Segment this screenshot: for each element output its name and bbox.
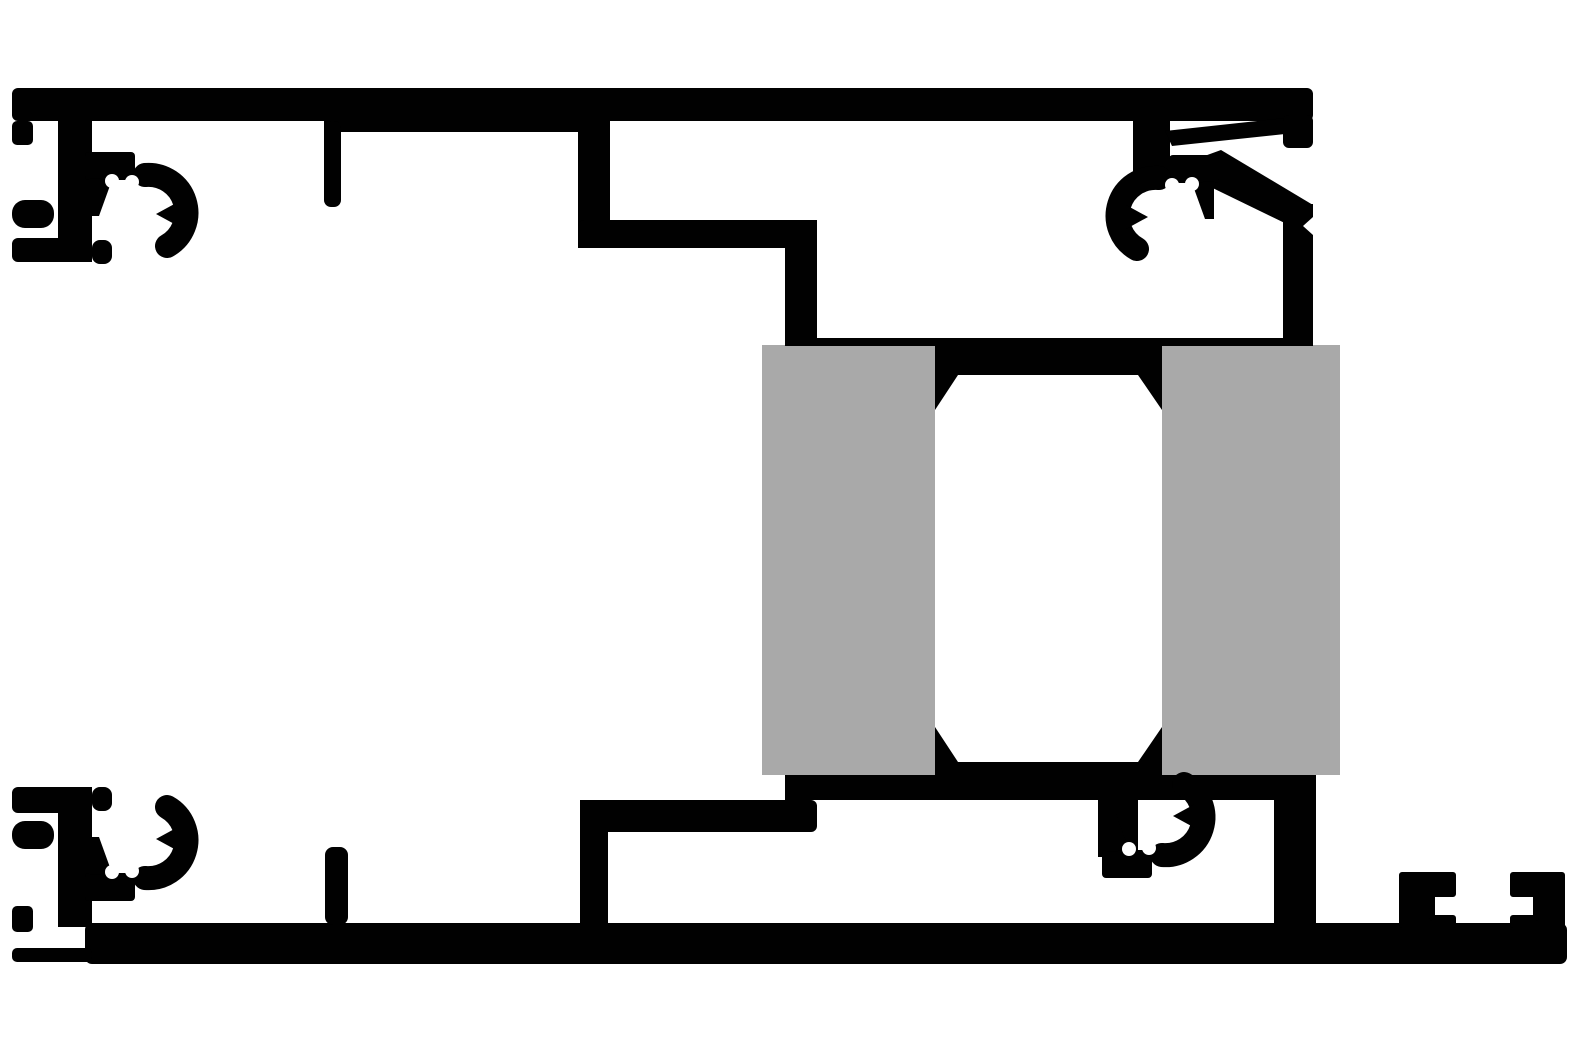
top-bar <box>12 88 1313 121</box>
center-band-top <box>935 345 1162 410</box>
bottom-step-wall <box>580 800 608 923</box>
profile-drawing <box>0 0 1577 1051</box>
top-right-strut <box>1165 118 1285 146</box>
track-hook-right <box>1513 875 1562 925</box>
profile-drawing-page <box>0 0 1577 1051</box>
top-left-finger <box>12 200 54 228</box>
top-bar-thick-segment <box>324 88 580 132</box>
step-wall-lower <box>785 220 817 346</box>
top-left-ledge <box>92 240 112 264</box>
center-band-bottom <box>935 727 1162 775</box>
top-left-stem <box>58 121 92 262</box>
bottom-left-lip <box>12 906 33 932</box>
bottom-glass-stub <box>325 847 348 925</box>
bottom-left-stem <box>58 787 92 927</box>
glazing-line <box>785 338 1313 346</box>
bottom-right-wall <box>1274 798 1316 925</box>
lower-band <box>785 775 1316 800</box>
track-hook-left <box>1402 875 1453 925</box>
clip-top-left <box>85 152 186 246</box>
base-bar-left-end <box>12 948 92 962</box>
base-bar <box>85 923 1567 964</box>
top-right-end-cap <box>1283 115 1313 148</box>
bottom-left-ledge <box>92 787 112 811</box>
top-glass-stub <box>324 121 341 207</box>
step-shelf <box>578 220 817 248</box>
thermal-pad-left <box>762 345 935 775</box>
profile-shapes <box>12 88 1567 964</box>
top-left-lip <box>12 121 33 145</box>
bottom-bar-upper <box>580 800 817 832</box>
thermal-pad-right <box>1162 345 1340 775</box>
clip-bottom-left <box>85 807 186 901</box>
bottom-left-finger <box>12 821 54 849</box>
